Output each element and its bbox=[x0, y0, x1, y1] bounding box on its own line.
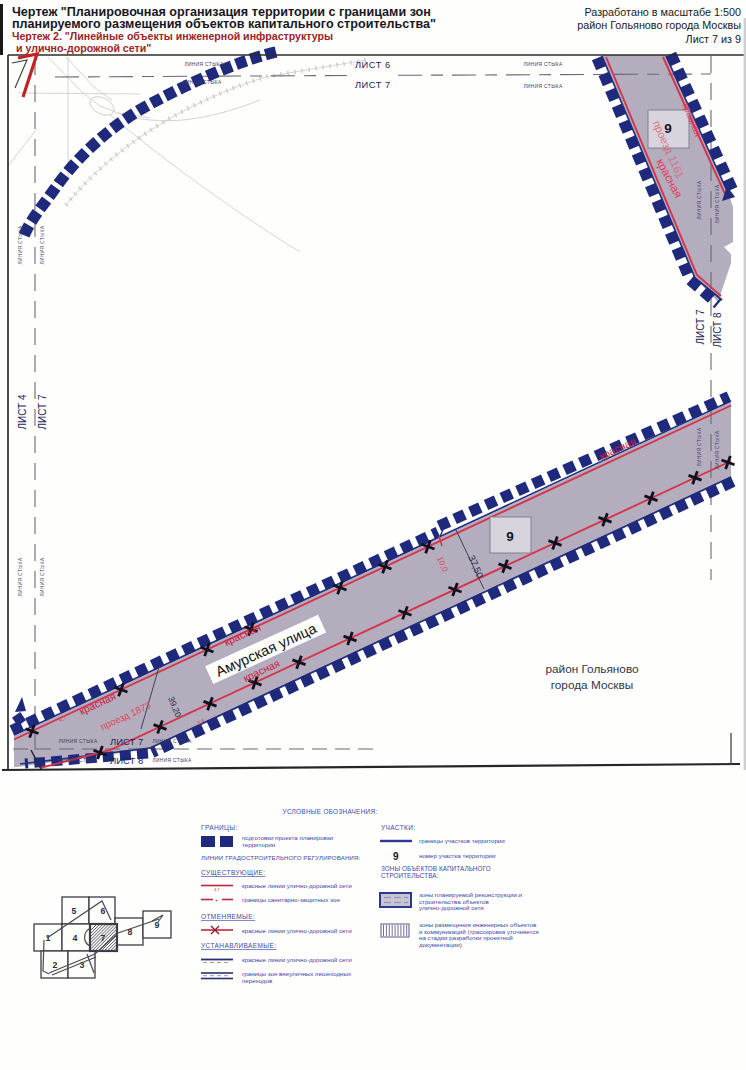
svg-text:ЛИНИЯ СТЫКА: ЛИНИЯ СТЫКА bbox=[18, 225, 23, 265]
svg-text:ЗОНЫ ОБЪЕКТОВ КАПИТАЛЬНОГО: ЗОНЫ ОБЪЕКТОВ КАПИТАЛЬНОГО bbox=[381, 865, 491, 872]
svg-text:ЛИНИЯ СТЫКА: ЛИНИЯ СТЫКА bbox=[715, 430, 720, 470]
svg-text:границы участков территории: границы участков территории bbox=[419, 837, 505, 844]
svg-text:7: 7 bbox=[101, 933, 106, 943]
svg-text:район Гольяново: район Гольяново bbox=[545, 662, 639, 676]
svg-text:ЛИСТ 8: ЛИСТ 8 bbox=[712, 312, 723, 348]
svg-text:ЛИНИЯ СТЫКА: ЛИНИЯ СТЫКА bbox=[184, 62, 224, 67]
svg-text:9: 9 bbox=[506, 529, 514, 544]
svg-text:ЛИНИЯ СТЫКА: ЛИНИЯ СТЫКА bbox=[40, 557, 45, 597]
svg-text:ЛИСТ 4: ЛИСТ 4 bbox=[17, 394, 28, 430]
svg-text:ЛИНИЯ СТЫКА: ЛИНИЯ СТЫКА bbox=[523, 84, 563, 89]
svg-text:ЛИНИЯ СТЫКА: ЛИНИЯ СТЫКА bbox=[152, 739, 192, 744]
svg-text:ЛИНИЯ СТЫКА: ЛИНИЯ СТЫКА bbox=[18, 557, 23, 597]
svg-text:2: 2 bbox=[53, 960, 58, 970]
svg-text:ЛИНИЯ СТЫКА: ЛИНИЯ СТЫКА bbox=[697, 427, 702, 467]
svg-text:ГРАНИЦЫ:: ГРАНИЦЫ: bbox=[201, 824, 238, 832]
svg-text:города Москвы: города Москвы bbox=[551, 678, 634, 692]
svg-text:красные линии улично-дорожной: красные линии улично-дорожной сети bbox=[242, 882, 352, 889]
svg-text:УЧАСТКИ:: УЧАСТКИ: bbox=[381, 824, 416, 831]
svg-text:УСЛОВНЫЕ ОБОЗНАЧЕНИЯ:: УСЛОВНЫЕ ОБОЗНАЧЕНИЯ: bbox=[283, 808, 378, 815]
svg-text:+: + bbox=[215, 897, 218, 903]
svg-text:4,7: 4,7 bbox=[214, 887, 220, 892]
svg-text:номер участка территории: номер участка территории bbox=[419, 852, 496, 859]
svg-text:планируемого размещения объект: планируемого размещения объектов капитал… bbox=[12, 17, 436, 31]
svg-text:территории: территории bbox=[242, 841, 276, 848]
svg-text:УСТАНАВЛИВАЕМЫЕ:: УСТАНАВЛИВАЕМЫЕ: bbox=[201, 942, 276, 949]
svg-text:5: 5 bbox=[72, 906, 77, 916]
svg-text:улично-дорожной сети: улично-дорожной сети bbox=[419, 904, 484, 911]
svg-text:и улично-дорожной сети": и улично-дорожной сети" bbox=[16, 42, 151, 54]
svg-text:ЛИНИЯ СТЫКА: ЛИНИЯ СТЫКА bbox=[58, 758, 98, 763]
svg-text:переходов: переходов bbox=[242, 977, 273, 984]
svg-text:красные линии улично-дорожной: красные линии улично-дорожной сети bbox=[242, 956, 352, 963]
svg-text:ЛИСТ 6: ЛИСТ 6 bbox=[355, 60, 391, 70]
svg-text:СУЩЕСТВУЮЩИЕ:: СУЩЕСТВУЮЩИЕ: bbox=[201, 869, 265, 877]
svg-text:ЛИСТ 7: ЛИСТ 7 bbox=[37, 394, 48, 430]
svg-text:ЛИНИЯ СТЫКА: ЛИНИЯ СТЫКА bbox=[58, 739, 98, 744]
svg-text:ЛИНИЯ СТЫКА: ЛИНИЯ СТЫКА bbox=[697, 180, 702, 220]
svg-text:Разработано в масштабе 1:500: Разработано в масштабе 1:500 bbox=[584, 6, 741, 18]
svg-text:ЛИНИЯ СТЫКА: ЛИНИЯ СТЫКА bbox=[152, 758, 192, 763]
svg-text:Чертеж 2. "Линейные объекты ин: Чертеж 2. "Линейные объекты инженерной и… bbox=[12, 30, 333, 42]
svg-text:ЛИСТ 8: ЛИСТ 8 bbox=[110, 755, 143, 766]
svg-text:ЛИСТ 7: ЛИСТ 7 bbox=[695, 309, 706, 345]
svg-text:ЛИНИЯ СТЫКА: ЛИНИЯ СТЫКА bbox=[715, 184, 720, 224]
svg-text:СТРОИТЕЛЬСТВА:: СТРОИТЕЛЬСТВА: bbox=[381, 872, 439, 879]
svg-text:ЛИСТ 7: ЛИСТ 7 bbox=[110, 736, 143, 747]
svg-text:Лист 7 из 9: Лист 7 из 9 bbox=[686, 33, 741, 45]
svg-text:район Гольяново города Москвы: район Гольяново города Москвы bbox=[577, 19, 741, 31]
svg-text:9: 9 bbox=[393, 851, 399, 862]
svg-text:ЛИНИЯ СТЫКА: ЛИНИЯ СТЫКА bbox=[40, 225, 45, 265]
svg-text:ОТМЕНЯЕМЫЕ:: ОТМЕНЯЕМЫЕ: bbox=[201, 913, 255, 920]
svg-text:границы санитарно-защитных зон: границы санитарно-защитных зон bbox=[242, 896, 340, 903]
svg-text:ЛИНИИ ГРАДОСТРОИТЕЛЬНОГО РЕГУЛ: ЛИНИИ ГРАДОСТРОИТЕЛЬНОГО РЕГУЛИРОВАНИЯ: bbox=[201, 854, 361, 861]
svg-text:красные линии улично-дорожной: красные линии улично-дорожной сети bbox=[242, 927, 352, 934]
svg-text:ЛИСТ 7: ЛИСТ 7 bbox=[355, 80, 391, 90]
svg-text:документации): документации) bbox=[419, 941, 462, 948]
svg-text:4: 4 bbox=[73, 933, 78, 943]
svg-text:ЛИНИЯ СТЫКА: ЛИНИЯ СТЫКА bbox=[523, 62, 563, 67]
svg-text:ЛИНИЯ СТЫКА: ЛИНИЯ СТЫКА bbox=[182, 80, 222, 85]
